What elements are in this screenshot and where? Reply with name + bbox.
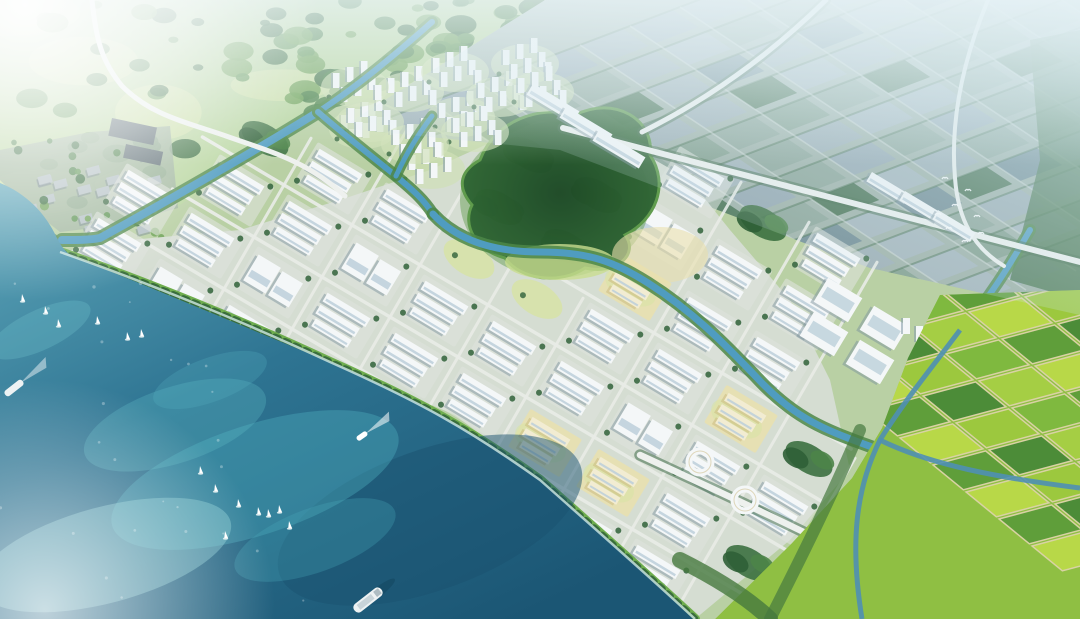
- water-sparkle: [113, 458, 116, 461]
- water-sparkle: [222, 533, 224, 535]
- tower: [431, 163, 438, 178]
- water-sparkle: [170, 359, 172, 361]
- tower: [417, 169, 424, 184]
- water-sparkle: [205, 365, 208, 368]
- tower-shadow: [429, 163, 431, 178]
- water-sparkle: [120, 596, 123, 599]
- tower-shadow: [914, 326, 916, 342]
- water-sparkle: [129, 301, 131, 303]
- water-sparkle: [139, 282, 142, 285]
- water-sparkle: [176, 506, 178, 508]
- water-sparkle: [256, 549, 259, 552]
- water-sparkle: [211, 391, 213, 393]
- tower-shadow: [901, 318, 903, 334]
- water-sparkle: [302, 599, 304, 601]
- water-sparkle: [72, 532, 75, 535]
- water-sparkle: [98, 441, 101, 444]
- water-sparkle: [105, 576, 108, 579]
- rendering-canvas: [0, 0, 1080, 619]
- water-sparkle: [162, 500, 164, 502]
- water-sparkle: [187, 363, 190, 366]
- aerial-masterplan-rendering: [0, 0, 1080, 619]
- water-sparkle: [133, 529, 136, 532]
- water-sparkle: [47, 307, 50, 310]
- water-sparkle: [100, 340, 103, 343]
- tower-shadow: [415, 169, 417, 184]
- water-sparkle: [184, 530, 187, 533]
- tower: [903, 318, 910, 334]
- water-sparkle: [220, 465, 223, 468]
- water-sparkle: [217, 439, 220, 442]
- water-sparkle: [102, 402, 105, 405]
